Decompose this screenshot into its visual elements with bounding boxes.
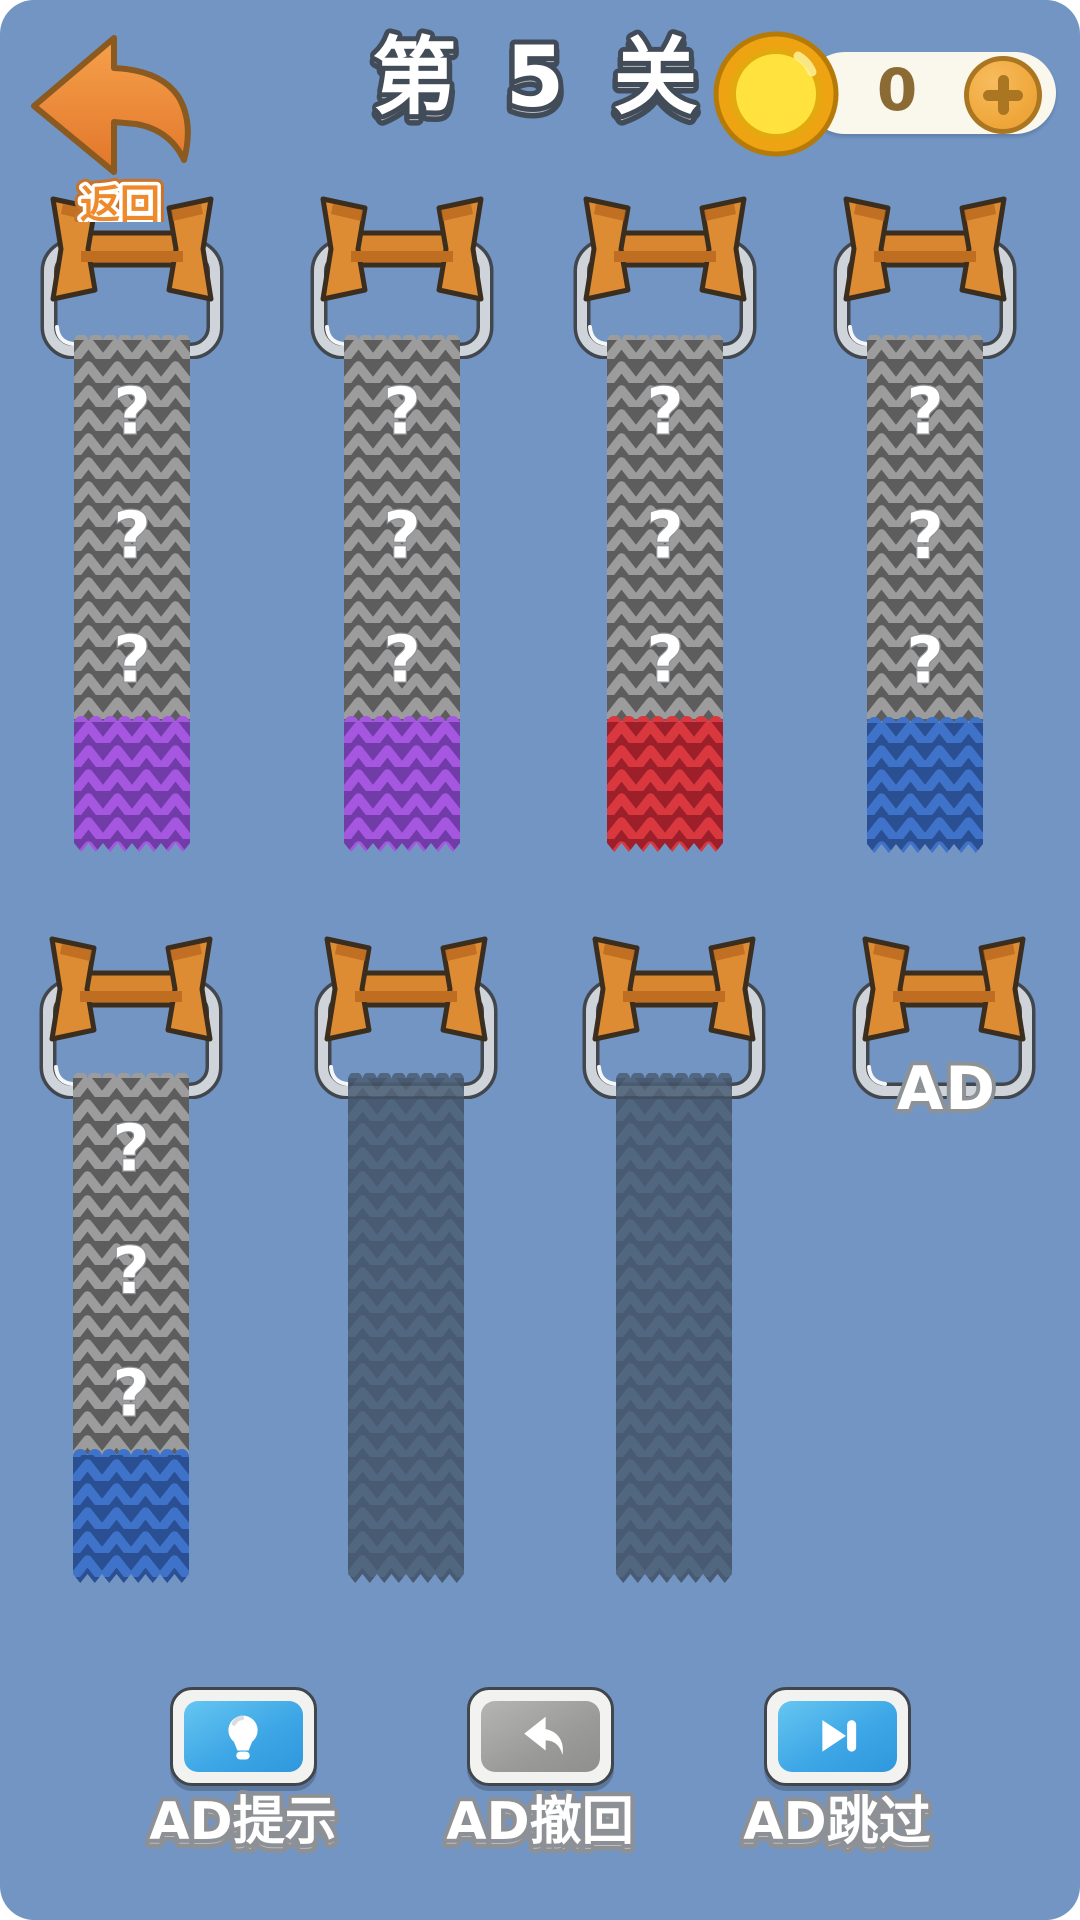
level-title: 第 5 关 第 5 关: [310, 14, 770, 134]
question-mark: ?: [113, 624, 150, 698]
question-mark: ?: [383, 500, 420, 574]
svg-text:AD跳过: AD跳过: [743, 1792, 930, 1852]
question-mark: ?: [383, 624, 420, 698]
yarn-strip[interactable]: ???: [344, 335, 460, 861]
skip-icon: [810, 1710, 864, 1764]
yarn-strip[interactable]: ???: [73, 1073, 189, 1592]
hint-button[interactable]: AD提示 AD提示: [108, 1687, 378, 1864]
question-mark: ?: [112, 1357, 149, 1431]
game-board: AD???????????????: [0, 0, 1080, 1920]
coin-icon: [712, 30, 840, 158]
svg-text:第 5 关: 第 5 关: [373, 28, 708, 126]
coin-count: 0: [832, 56, 962, 124]
coin-bar: 0: [712, 30, 1072, 160]
spool-icon[interactable]: [830, 193, 1020, 305]
yarn-strip[interactable]: ???: [607, 335, 723, 861]
spool-icon[interactable]: [849, 933, 1039, 1045]
question-mark: ?: [113, 500, 150, 574]
back-label: 返回: [80, 182, 160, 222]
back-arrow-icon: [34, 38, 188, 172]
undo-button[interactable]: AD撤回 AD撤回: [405, 1687, 675, 1864]
question-mark: ?: [906, 500, 943, 574]
question-mark: ?: [906, 376, 943, 450]
add-coins-button[interactable]: [964, 56, 1042, 134]
spool-icon[interactable]: [311, 933, 501, 1045]
spool-icon[interactable]: [570, 193, 760, 305]
svg-text:AD撤回: AD撤回: [446, 1792, 633, 1852]
question-mark: ?: [906, 625, 943, 699]
spool-ad-slot[interactable]: AD: [849, 933, 1039, 1233]
lightbulb-icon: [216, 1710, 270, 1764]
spool-icon[interactable]: [36, 933, 226, 1045]
svg-text:AD: AD: [897, 1054, 997, 1124]
svg-text:AD提示: AD提示: [149, 1792, 336, 1852]
yarn-strip[interactable]: ???: [74, 335, 190, 861]
yarn-strip[interactable]: [616, 1073, 732, 1592]
question-mark: ?: [383, 375, 420, 449]
game-screen: AD??????????????? 返回 返回 返回 第 5 关 第 5 关: [0, 0, 1080, 1920]
question-mark: ?: [112, 1112, 149, 1186]
question-mark: ?: [646, 500, 683, 574]
spool-icon[interactable]: [307, 193, 497, 305]
back-button[interactable]: 返回 返回 返回: [22, 22, 207, 222]
question-mark: ?: [112, 1235, 149, 1309]
undo-icon: [513, 1710, 567, 1764]
ad-watch-label[interactable]: AD: [849, 1049, 1039, 1133]
question-mark: ?: [646, 624, 683, 698]
skip-button[interactable]: AD跳过 AD跳过: [702, 1687, 972, 1864]
question-mark: ?: [646, 375, 683, 449]
yarn-strip[interactable]: [348, 1073, 464, 1592]
question-mark: ?: [113, 375, 150, 449]
yarn-strip[interactable]: ???: [867, 335, 983, 862]
spool-icon[interactable]: [579, 933, 769, 1045]
